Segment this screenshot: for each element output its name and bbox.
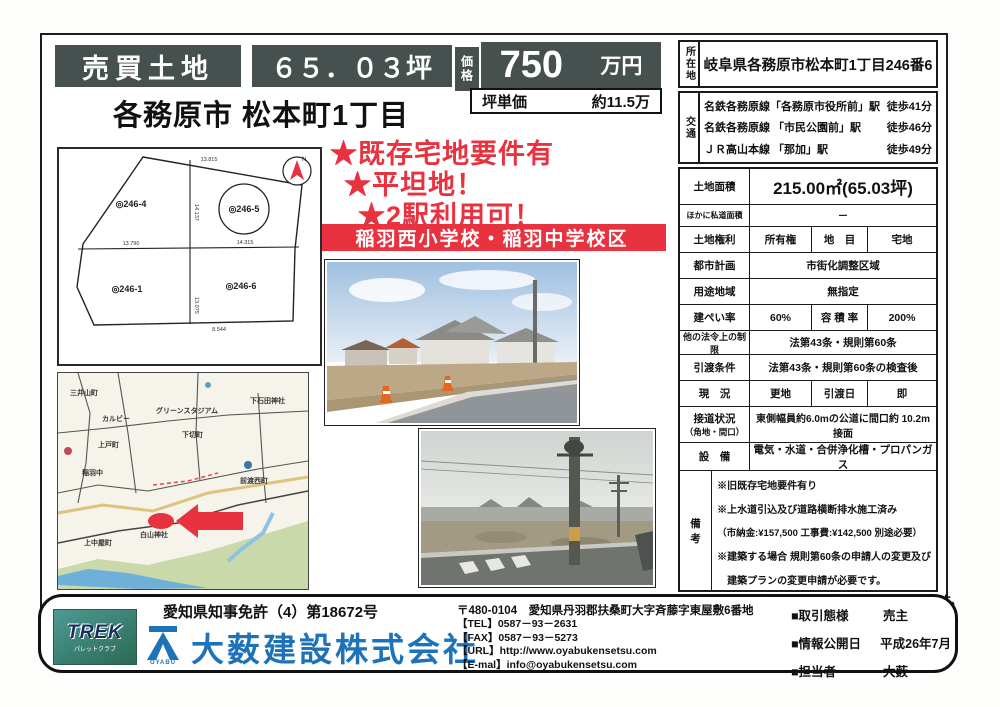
map-label: 三井山町 — [70, 388, 98, 397]
table-row-zoning: 用途地域 無指定 — [680, 279, 936, 305]
other-law-value: 法第43条・規則第60条 — [750, 331, 936, 354]
access-line: 名鉄各務原線 「市民公園前」駅 徒歩46分 — [704, 119, 932, 135]
staff-row: ■担当者 大薮 — [791, 661, 951, 680]
company-fax: 【FAX】0587－93－5273 — [457, 632, 787, 646]
city-plan-label: 都市計画 — [680, 253, 750, 278]
dim-top: 13.815 — [201, 157, 218, 163]
company-logo: OYABU — [139, 624, 187, 670]
site-plan-figure: ◎246-4 ◎246-5 ◎246-1 ◎246-6 13.815 13.79… — [57, 147, 322, 366]
other-law-label: 他の法令上の制限 — [680, 331, 750, 354]
table-row-other-law: 他の法令上の制限 法第43条・規則第60条 — [680, 331, 936, 355]
property-photo-1 — [324, 259, 580, 426]
footer-bar: TREK パレットクラブ 愛知県知事免許（4）第18672号 OYABU 大薮建… — [38, 594, 958, 673]
map-label: 白山神社 — [140, 530, 168, 539]
zoning-value: 無指定 — [750, 279, 936, 304]
table-row-status: 現 況 更地 引渡日 即 — [680, 381, 936, 407]
private-road-value: － — [750, 205, 936, 226]
location-value: 岐阜県各務原市松本町1丁目246番6 — [700, 42, 936, 86]
access-line: ＪＲ高山本線 「那加」駅 徒歩49分 — [704, 141, 932, 157]
remark-line: ※建築する場合 規則第60条の申請人の変更及び — [717, 548, 931, 563]
map-property-marker — [148, 513, 174, 529]
compass-icon: N — [283, 157, 311, 185]
remark-line: （市納金:¥157,500 工事費:¥142,500 別途必要） — [717, 525, 922, 539]
trek-logo-subtext: パレットクラブ — [74, 644, 116, 653]
company-tel: 【TEL】0587－93－2631 — [457, 618, 787, 632]
access-walk: 徒歩46分 — [887, 119, 932, 135]
license-number: 愛知県知事免許（4）第18672号 — [163, 601, 378, 622]
property-photo-2 — [418, 428, 656, 588]
land-category-label: 地 目 — [812, 227, 868, 252]
status-label: 現 況 — [680, 381, 750, 406]
dim-v-bottom: 13.075 — [193, 297, 199, 314]
unit-price-value: 約11.5万 — [592, 91, 650, 112]
price-value: 750 — [500, 46, 563, 84]
zoning-label: 用途地域 — [680, 279, 750, 304]
company-url: 【URL】http://www.oyabukensetsu.com — [457, 645, 787, 659]
access-route: 名鉄各務原線 「市民公園前」駅 — [704, 119, 861, 135]
remark-line: ※上水道引込及び道路横断排水施工済み — [717, 501, 897, 516]
table-row-remarks: 備 考 ※旧既存宅地要件有り ※上水道引込及び道路横断排水施工済み （市納金:¥… — [680, 471, 936, 590]
price-label: 価格 — [455, 47, 479, 91]
coverage-value: 60% — [750, 305, 812, 330]
map-label: 下切町 — [182, 430, 203, 439]
utility-value: 電気・水道・合併浄化槽・プロパンガス — [750, 443, 936, 470]
land-right-value: 所有権 — [750, 227, 812, 252]
map-label: カルビー — [102, 414, 130, 423]
deal-type-value: 売主 — [883, 605, 908, 624]
access-route: 名鉄各務原線「各務原市役所前」駅 — [704, 98, 880, 114]
table-row-private-road: ほかに私道面積 － — [680, 205, 936, 227]
deal-type-label: ■取引態様 — [791, 605, 883, 624]
flyer-page: 売買土地 ６５．０３坪 価格 750 万円 坪単価 約11.5万 各務原市 松本… — [0, 0, 1000, 707]
city-plan-value: 市街化調整区域 — [750, 253, 936, 278]
table-row-city-plan: 都市計画 市街化調整区域 — [680, 253, 936, 279]
staff-value: 大薮 — [883, 661, 908, 680]
handover-cond-value: 法第43条・規則第60条の検査後 — [750, 355, 936, 380]
dim-bottom: 8.544 — [212, 327, 226, 333]
road-label: 接道状況 （角地・間口） — [680, 407, 750, 442]
handover-cond-label: 引渡条件 — [680, 355, 750, 380]
land-area-label: 土地面積 — [680, 169, 750, 204]
access-box: 交通 名鉄各務原線「各務原市役所前」駅 徒歩41分 名鉄各務原線 「市民公園前」… — [678, 91, 938, 164]
floor-ratio-value: 200% — [868, 305, 936, 330]
table-row-coverage: 建ぺい率 60% 容 積 率 200% — [680, 305, 936, 331]
utility-label: 設 備 — [680, 443, 750, 470]
area-map-drawing: 三井山町 カルビー グリーンスタジアム 下切町 上戸町 稲羽中 前渡西町 白山神… — [58, 373, 308, 589]
remark-line: 建築プランの変更申請が必要です。 — [717, 572, 886, 587]
deal-type-row: ■取引態様 売主 — [791, 605, 951, 624]
staff-label: ■担当者 — [791, 661, 883, 680]
area-map: 三井山町 カルビー グリーンスタジアム 下切町 上戸町 稲羽中 前渡西町 白山神… — [57, 372, 309, 590]
table-row-utility: 設 備 電気・水道・合併浄化槽・プロパンガス — [680, 443, 936, 471]
table-row-road: 接道状況 （角地・間口） 東側幅員約6.0mの公道に間口約 10.2m接面 — [680, 407, 936, 443]
unit-price-box: 坪単価 約11.5万 — [470, 88, 662, 114]
oyabu-mark-icon — [143, 624, 183, 660]
access-route: ＪＲ高山本線 「那加」駅 — [704, 141, 828, 157]
company-name: 大薮建設株式会社 — [191, 623, 479, 671]
remarks-value: ※旧既存宅地要件有り ※上水道引込及び道路横断排水施工済み （市納金:¥157,… — [712, 471, 936, 590]
private-road-label: ほかに私道面積 — [680, 205, 750, 226]
remarks-label: 備 考 — [680, 471, 712, 590]
parcel-246-5-label: ◎246-5 — [229, 204, 260, 214]
town-title: 各務原市 松本町1丁目 — [113, 92, 473, 134]
spec-table: 土地面積 215.00㎡(65.03坪) ほかに私道面積 － 土地権利 所有権 … — [678, 167, 938, 592]
map-label: 稲羽中 — [82, 468, 103, 477]
road-value: 東側幅員約6.0mの公道に間口約 10.2m接面 — [750, 407, 936, 442]
access-label: 交通 — [680, 93, 700, 162]
price-box: 750 万円 — [481, 42, 661, 88]
company-address-block: 〒480-0104 愛知県丹羽郡扶桑町大字斉藤字東屋敷6番地 【TEL】0587… — [457, 602, 787, 673]
publish-date-row: ■情報公開日 平成26年7月 — [791, 633, 951, 652]
dim-right-mid: 14.315 — [237, 240, 254, 246]
dim-v-top: 14.137 — [193, 204, 199, 221]
site-plan-drawing: ◎246-4 ◎246-5 ◎246-1 ◎246-6 13.815 13.79… — [59, 149, 320, 364]
company-email: 【E-mal】info@oyabukensetsu.com — [457, 659, 787, 673]
access-walk: 徒歩49分 — [887, 141, 932, 157]
publish-date-value: 平成26年7月 — [880, 633, 951, 652]
floor-ratio-label: 容 積 率 — [812, 305, 868, 330]
access-walk: 徒歩41分 — [887, 98, 932, 114]
table-row-land-area: 土地面積 215.00㎡(65.03坪) — [680, 169, 936, 205]
oyabu-logo-text: OYABU — [150, 660, 176, 666]
access-line: 名鉄各務原線「各務原市役所前」駅 徒歩41分 — [704, 98, 932, 114]
land-right-label: 土地権利 — [680, 227, 750, 252]
location-label: 所在地 — [680, 42, 700, 86]
parcel-246-1-label: ◎246-1 — [112, 284, 143, 294]
remark-line: ※旧既存宅地要件有り — [717, 477, 817, 492]
table-row-land-right: 土地権利 所有権 地 目 宅地 — [680, 227, 936, 253]
company-postal-address: 〒480-0104 愛知県丹羽郡扶桑町大字斉藤字東屋敷6番地 — [457, 602, 787, 618]
location-box: 所在地 岐阜県各務原市松本町1丁目246番6 — [678, 40, 938, 88]
publish-date-label: ■情報公開日 — [791, 633, 880, 652]
trek-logo: TREK パレットクラブ — [53, 609, 137, 665]
table-row-handover-cond: 引渡条件 法第43条・規則第60条の検査後 — [680, 355, 936, 381]
trek-logo-text: TREK — [67, 622, 123, 644]
map-label: 下石田神社 — [250, 396, 285, 405]
unit-price-label: 坪単価 — [482, 91, 527, 112]
map-label: 上中屋町 — [84, 538, 112, 547]
coverage-label: 建ぺい率 — [680, 305, 750, 330]
sale-type-badge: 売買土地 — [55, 45, 241, 87]
map-label: 上戸町 — [98, 440, 119, 449]
status-value: 更地 — [750, 381, 812, 406]
school-district-banner: 稲羽西小学校・稲羽中学校区 — [318, 224, 666, 251]
dim-left-mid: 13.790 — [123, 241, 140, 247]
area-tsubo-badge: ６５．０３坪 — [252, 45, 452, 87]
parcel-246-4-label: ◎246-4 — [116, 199, 147, 209]
handover-date-value: 即 — [868, 381, 936, 406]
parcel-246-6-label: ◎246-6 — [226, 281, 257, 291]
price-unit: 万円 — [600, 50, 642, 80]
map-label: グリーンスタジアム — [156, 406, 218, 415]
deal-info-block: ■取引態様 売主 ■情報公開日 平成26年7月 ■担当者 大薮 — [791, 605, 951, 689]
map-label: 前渡西町 — [240, 476, 268, 485]
land-category-value: 宅地 — [868, 227, 936, 252]
land-area-value: 215.00㎡(65.03坪) — [750, 169, 936, 204]
handover-date-label: 引渡日 — [812, 381, 868, 406]
compass-n-label: N — [302, 157, 306, 163]
